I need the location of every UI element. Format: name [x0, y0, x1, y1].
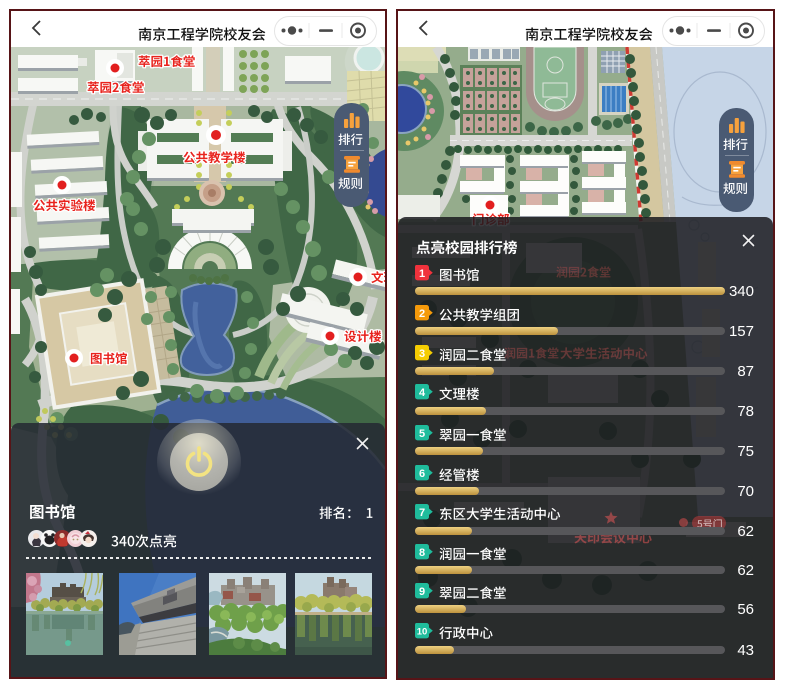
- svg-text:7: 7: [419, 507, 425, 519]
- svg-text:6: 6: [419, 468, 425, 480]
- svg-text:2: 2: [419, 308, 425, 320]
- svg-text:4: 4: [419, 387, 426, 399]
- svg-text:5: 5: [419, 428, 425, 440]
- svg-text:8: 8: [419, 547, 425, 559]
- svg-text:1: 1: [419, 268, 425, 280]
- svg-text:3: 3: [419, 348, 425, 360]
- svg-text:10: 10: [417, 627, 428, 638]
- svg-text:9: 9: [419, 586, 425, 598]
